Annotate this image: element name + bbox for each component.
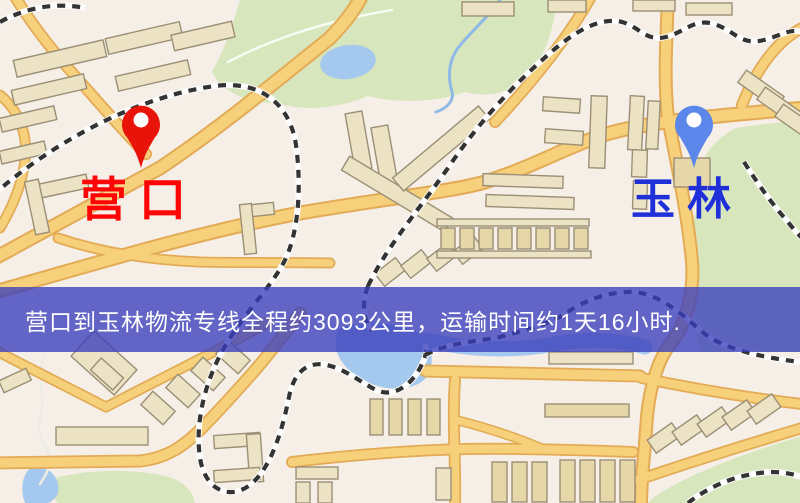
- map: 营口 玉林 营口到玉林物流专线全程约3093公里，运输时间约1天16小时.: [0, 0, 800, 503]
- origin-pin-icon: [122, 106, 160, 168]
- origin-city-label: 营口: [80, 176, 198, 223]
- map-graphic: [0, 0, 800, 503]
- destination-city-label: 玉林: [631, 178, 743, 222]
- route-info-banner: 营口到玉林物流专线全程约3093公里，运输时间约1天16小时.: [0, 287, 800, 352]
- route-info-text: 营口到玉林物流专线全程约3093公里，运输时间约1天16小时.: [0, 287, 800, 352]
